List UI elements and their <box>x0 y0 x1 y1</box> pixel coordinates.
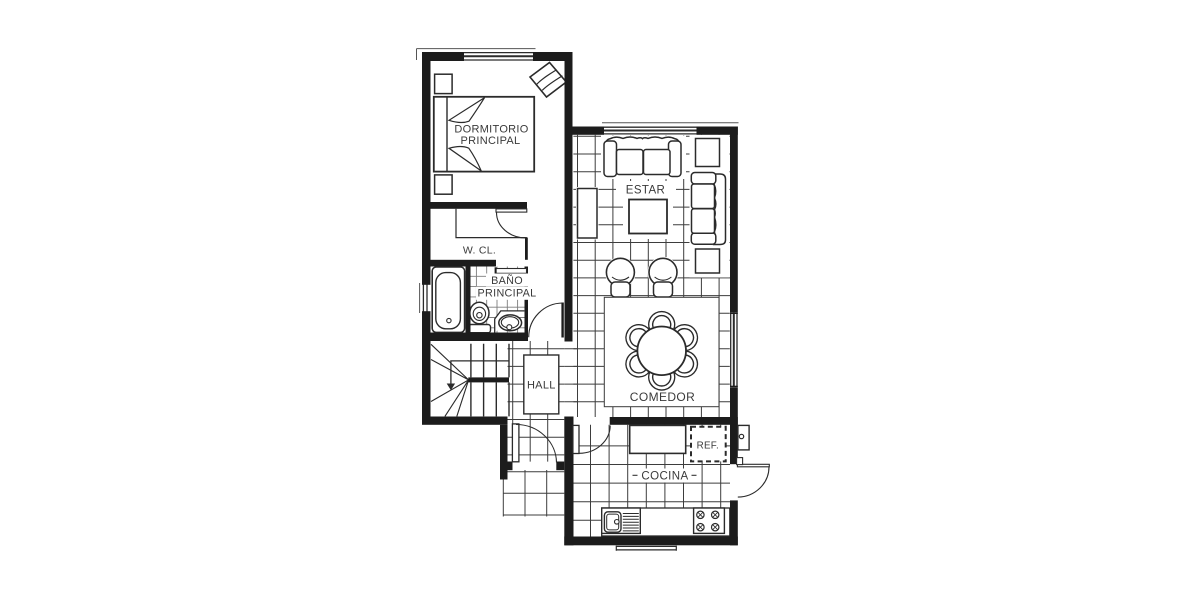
svg-text:REF.: REF. <box>697 440 719 451</box>
svg-text:PRINCIPAL: PRINCIPAL <box>478 288 537 300</box>
svg-text:COCINA: COCINA <box>641 470 688 482</box>
svg-text:PRINCIPAL: PRINCIPAL <box>461 135 521 147</box>
svg-text:HALL: HALL <box>527 379 556 391</box>
svg-text:BAÑO: BAÑO <box>491 274 523 287</box>
svg-text:DORMITORIO: DORMITORIO <box>454 123 528 135</box>
svg-text:W. CL.: W. CL. <box>463 244 496 256</box>
svg-text:COMEDOR: COMEDOR <box>630 390 695 404</box>
svg-text:ESTAR: ESTAR <box>626 184 666 196</box>
